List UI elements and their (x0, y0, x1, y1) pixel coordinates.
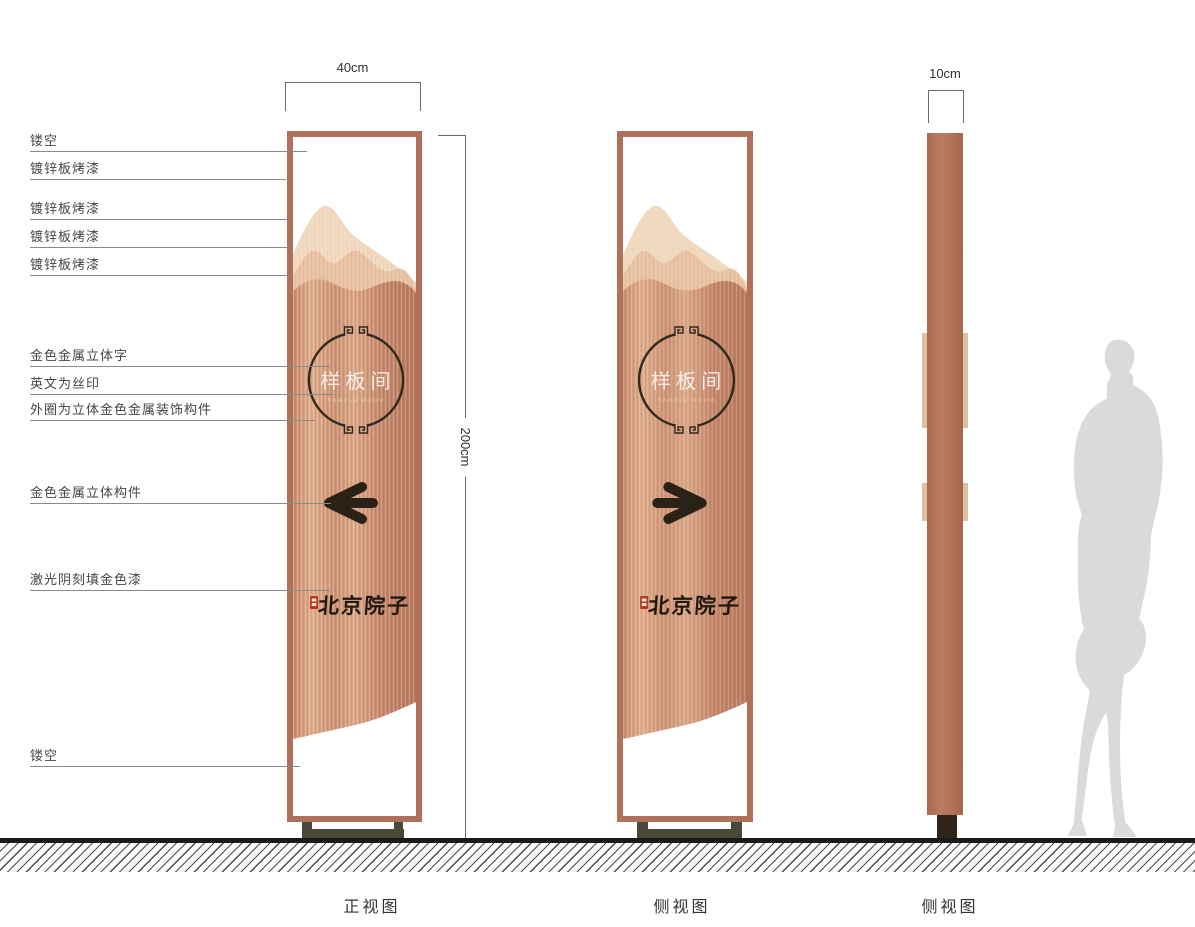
room-name-english: SAMPLE ROOM (658, 398, 716, 404)
annotation-outer-ring: 外圈为立体金色金属装饰构件 (30, 402, 315, 421)
dimension-tick-height (438, 135, 466, 136)
dimension-bracket-profile (928, 90, 964, 123)
human-scale-silhouette (1036, 336, 1188, 840)
front-panel-artwork: 样板间 SAMPLE ROOM 北京院子 (293, 137, 416, 816)
seal-icon (310, 596, 318, 609)
dimension-line-height-lower (465, 477, 466, 838)
annotation-gold-component: 金色金属立体构件 (30, 485, 331, 504)
profile-arrow-protrusion-right (963, 483, 968, 521)
mountain-graphic (623, 206, 747, 739)
annotation-galvanized-2: 镀锌板烤漆 (30, 201, 288, 220)
view-label-front: 正视图 (297, 893, 447, 917)
brand-logo: 北京院子 (640, 593, 742, 618)
view-label-side: 侧视图 (607, 893, 757, 917)
annotation-galvanized-3: 镀锌板烤漆 (30, 229, 290, 248)
dimension-line-height-upper (465, 135, 466, 418)
annotation-hollow-bottom: 镂空 (30, 748, 300, 767)
annotation-galvanized-4: 镀锌板烤漆 (30, 257, 289, 276)
room-name-english: SAMPLE ROOM (327, 398, 384, 404)
brand-logo: 北京院子 (310, 594, 411, 618)
seal-icon (640, 596, 648, 609)
dimension-bracket-front (285, 82, 421, 111)
side-view-panel: 样板间 SAMPLE ROOM 北京院子 (617, 131, 753, 822)
signage-design-sheet: { "dimensions": { "front_width": "40cm",… (0, 0, 1195, 927)
annotation-english-silkscreen: 英文为丝印 (30, 376, 333, 395)
view-label-profile: 侧视图 (875, 893, 1025, 917)
brand-name-text: 北京院子 (647, 593, 741, 618)
profile-ring-protrusion-right (963, 333, 968, 428)
annotation-hollow-top: 镂空 (30, 133, 307, 152)
mountain-graphic (293, 206, 416, 739)
annotation-galvanized-1: 镀锌板烤漆 (30, 161, 286, 180)
dimension-front-width: 40cm (285, 60, 420, 75)
annotation-laser-engrave: 激光阴刻填金色漆 (30, 572, 330, 591)
annotation-gold-letters: 金色金属立体字 (30, 348, 330, 367)
room-name-text: 样板间 (651, 370, 727, 393)
front-view-panel: 样板间 SAMPLE ROOM 北京院子 (287, 131, 422, 822)
profile-view-panel (927, 133, 963, 815)
person-icon (1036, 336, 1188, 840)
profile-base-block (937, 815, 957, 839)
dimension-profile-width: 10cm (910, 66, 980, 81)
ground-hatch (0, 843, 1195, 872)
side-panel-artwork: 样板间 SAMPLE ROOM 北京院子 (623, 137, 747, 816)
brand-name-text: 北京院子 (317, 594, 411, 618)
dimension-height: 200cm (459, 417, 473, 477)
front-base-bar (308, 829, 404, 838)
side-base-bar (644, 829, 738, 838)
